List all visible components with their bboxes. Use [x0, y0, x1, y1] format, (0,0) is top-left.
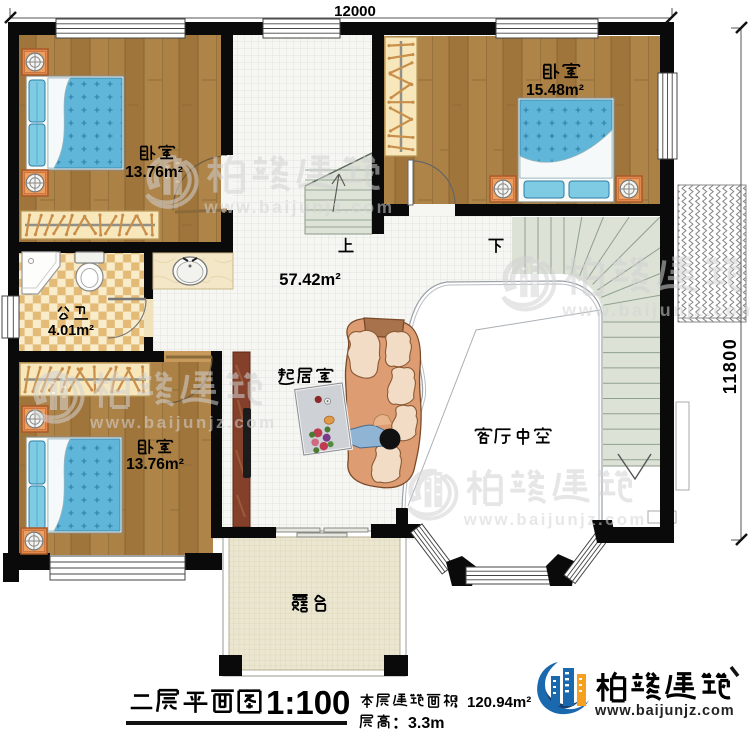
svg-text:www.baijunjz.com: www.baijunjz.com [89, 413, 277, 432]
svg-text:：120.94m²: ：120.94m² [452, 694, 531, 711]
svg-text:57.42m²: 57.42m² [279, 271, 341, 289]
svg-text:www.baijunjz.com: www.baijunjz.com [561, 300, 750, 320]
svg-text:www.baijunjz.com: www.baijunjz.com [203, 197, 394, 217]
svg-text:11800: 11800 [720, 338, 740, 395]
svg-text:www.baijunjz.com: www.baijunjz.com [594, 703, 735, 719]
svg-text:1:100: 1:100 [266, 684, 350, 721]
svg-text:4.01m²: 4.01m² [48, 323, 94, 339]
svg-text:15.48m²: 15.48m² [526, 82, 584, 99]
svg-text:：3.3m: ：3.3m [392, 715, 444, 732]
svg-text:13.76m²: 13.76m² [126, 456, 184, 473]
svg-text:12000: 12000 [334, 3, 376, 20]
svg-text:www.baijunjz.com: www.baijunjz.com [463, 510, 647, 529]
svg-text:13.76m²: 13.76m² [125, 164, 183, 181]
